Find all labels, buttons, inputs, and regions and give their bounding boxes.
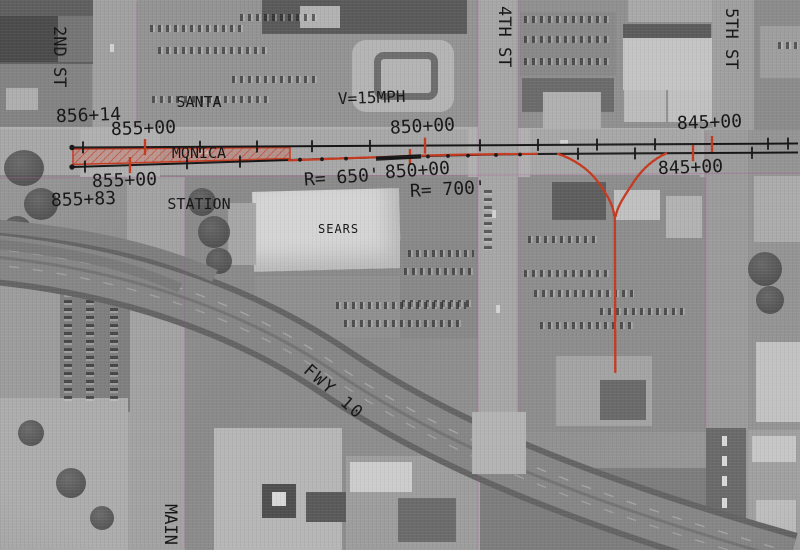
station-label-855-00-upper: 855+00 xyxy=(111,119,177,140)
street-label-5th: 5TH ST xyxy=(721,8,739,69)
station-name-label: SANTA MONICA STATION xyxy=(156,60,242,247)
alignment-annotation-layer xyxy=(0,0,800,550)
station-name-line: STATION xyxy=(156,196,242,213)
street-label-4th: 4TH ST xyxy=(494,6,512,67)
station-label-845-00-lower: 845+00 xyxy=(658,158,724,179)
station-label-845-00-upper: 845+00 xyxy=(677,113,743,134)
wye-track-red xyxy=(558,153,666,372)
station-name-line: SANTA xyxy=(156,94,242,111)
sears-building-label: SEARS xyxy=(318,223,359,236)
station-name-line: MONICA xyxy=(156,145,242,162)
station-label-850-00-upper: 850+00 xyxy=(390,116,456,138)
radius-label-700: R= 700' xyxy=(410,179,487,202)
street-label-2nd: 2ND ST xyxy=(49,26,67,87)
spiral-segment-bar xyxy=(376,156,421,158)
street-label-main: MAIN xyxy=(160,504,178,545)
station-label-855-83: 855+83 xyxy=(51,190,117,211)
speed-restriction-label: V=15MPH xyxy=(338,89,406,108)
aerial-alignment-plan-map: 2ND ST 4TH ST 5TH ST MAIN FWY 10 SANTA M… xyxy=(0,0,800,550)
